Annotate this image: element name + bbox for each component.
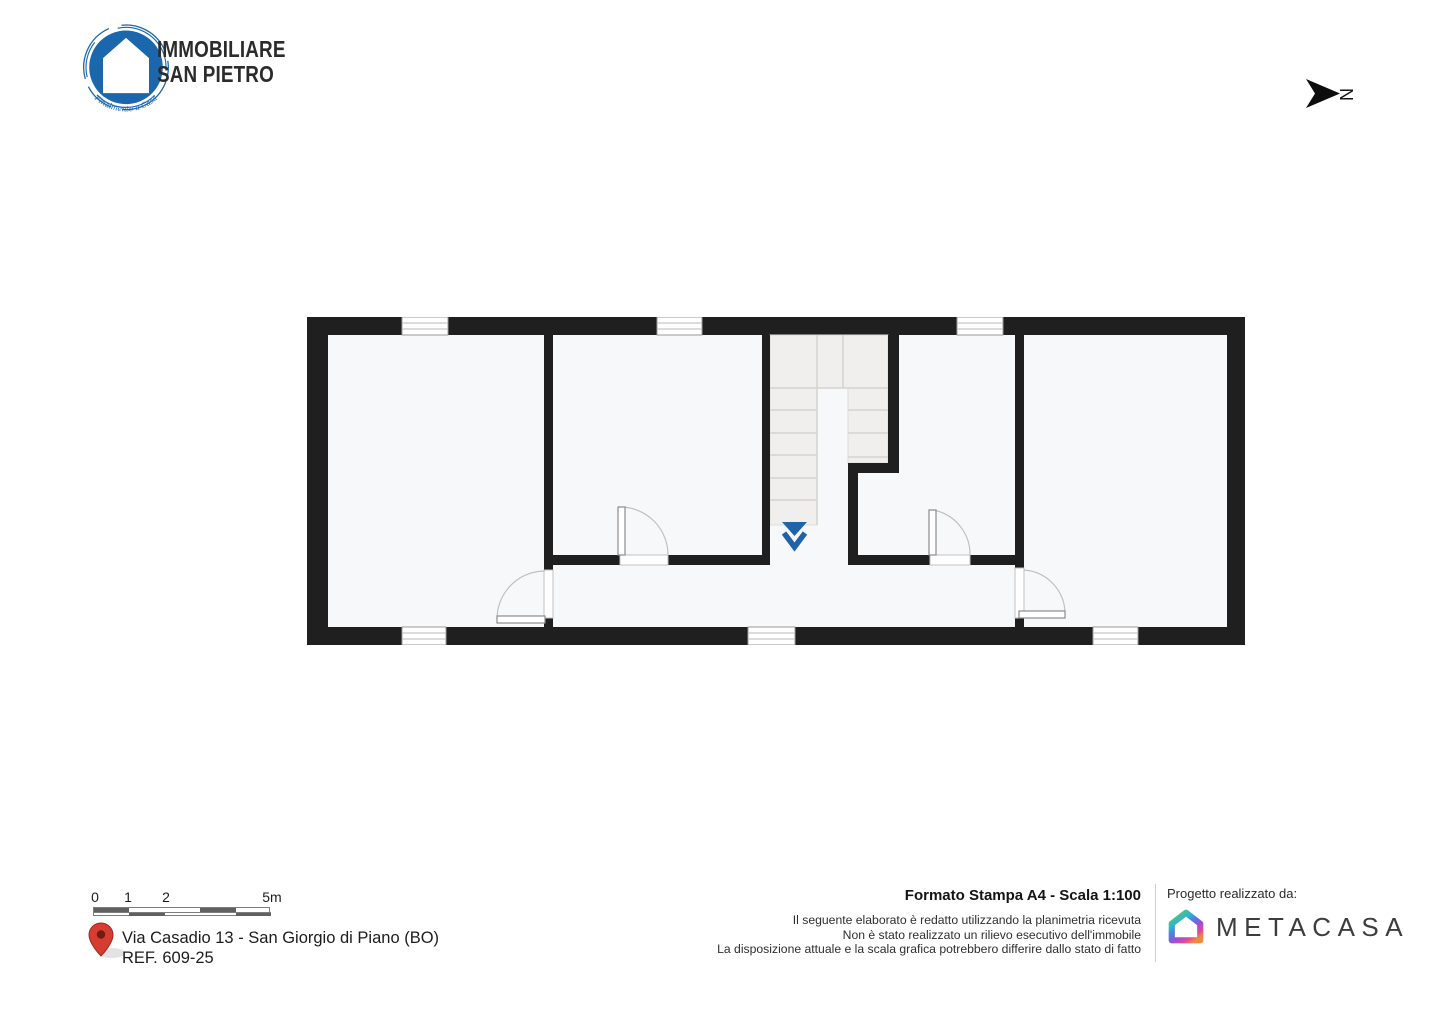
window xyxy=(657,317,702,335)
address-ref: REF. 609-25 xyxy=(122,948,439,968)
floor-plan xyxy=(307,317,1245,645)
brand-name: IMMOBILIARE SAN PIETRO xyxy=(157,37,286,87)
window xyxy=(1093,627,1138,645)
disclaimer-line: Non è stato realizzato un rilievo esecut… xyxy=(641,928,1141,943)
window xyxy=(748,627,795,645)
metacasa-credit: METACASA xyxy=(1167,908,1409,946)
disclaimer-line: Il seguente elaborato è redatto utilizza… xyxy=(641,913,1141,928)
scale-label-5m: 5m xyxy=(262,889,281,905)
brand-name-line1: IMMOBILIARE xyxy=(157,37,286,62)
scale-label-1: 1 xyxy=(124,889,132,905)
print-format-title: Formato Stampa A4 - Scala 1:100 xyxy=(641,887,1141,904)
floorplan-page: Finalmente a Casa IMMOBILIARE SAN PIETRO… xyxy=(0,0,1440,1018)
scale-label-2: 2 xyxy=(162,889,170,905)
disclaimer-line: La disposizione attuale e la scala grafi… xyxy=(641,942,1141,957)
window xyxy=(402,627,446,645)
north-indicator: N xyxy=(1306,74,1366,114)
window xyxy=(402,317,448,335)
address-line: Via Casadio 13 - San Giorgio di Piano (B… xyxy=(122,928,439,948)
address: Via Casadio 13 - San Giorgio di Piano (B… xyxy=(122,928,439,968)
scale-label-0: 0 xyxy=(91,889,99,905)
credits-label: Progetto realizzato da: xyxy=(1167,886,1297,901)
north-letter: N xyxy=(1335,88,1356,101)
window xyxy=(957,317,1003,335)
footer-divider xyxy=(1155,884,1156,962)
metacasa-house-icon xyxy=(1167,908,1205,946)
print-info: Formato Stampa A4 - Scala 1:100 Il segue… xyxy=(641,887,1141,957)
metacasa-brand-name: METACASA xyxy=(1216,912,1409,943)
brand-name-line2: SAN PIETRO xyxy=(157,62,286,87)
scale-bar xyxy=(93,907,270,916)
